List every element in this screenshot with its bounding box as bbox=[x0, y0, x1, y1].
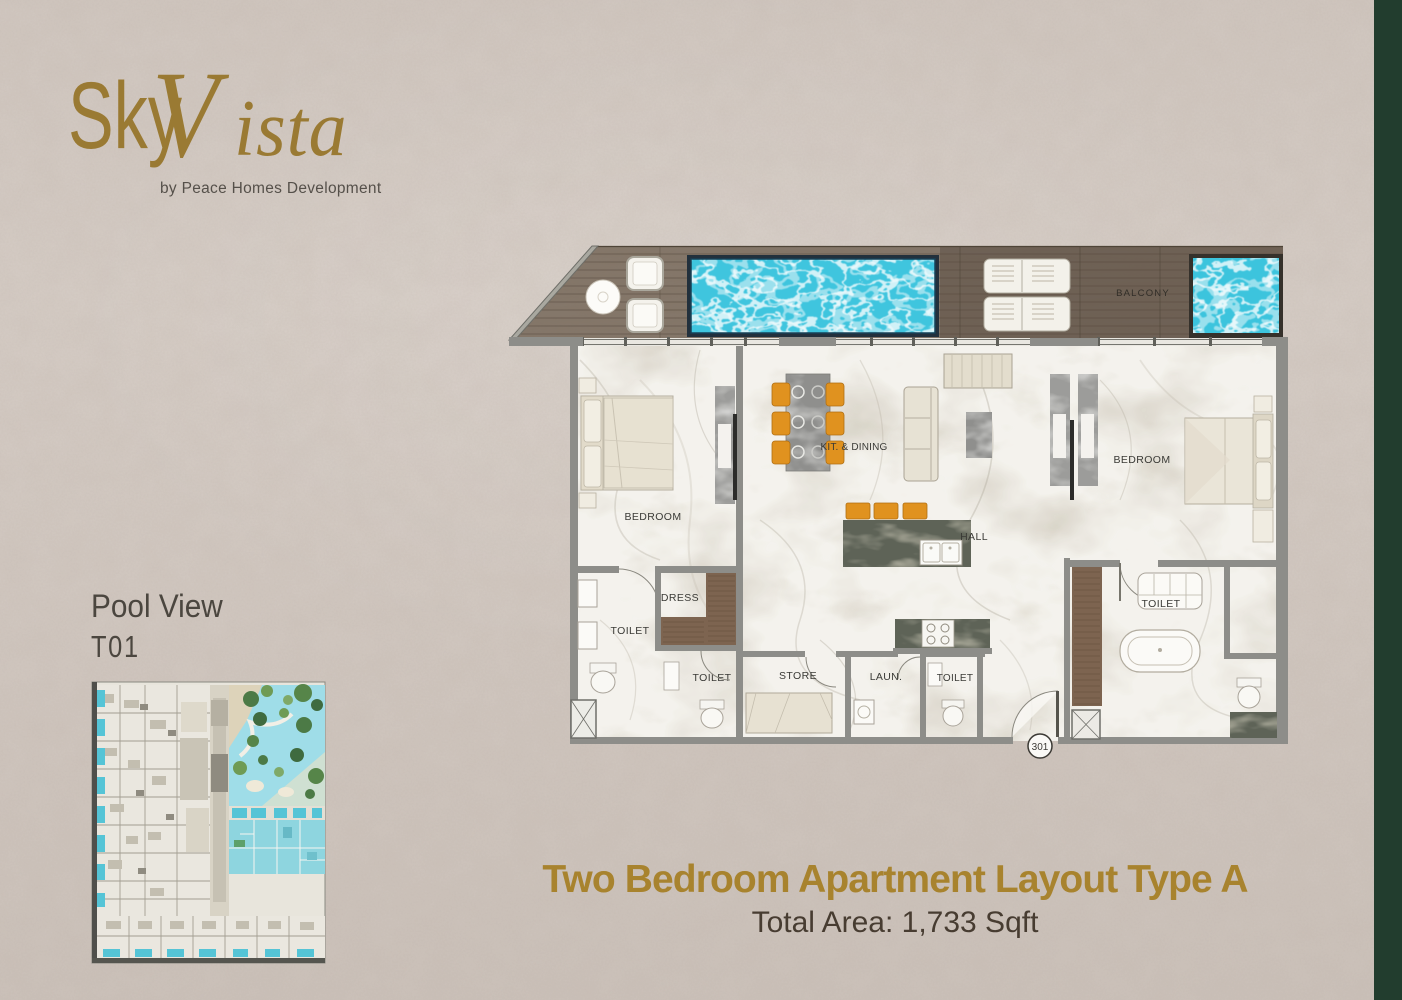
svg-text:BEDROOM: BEDROOM bbox=[624, 511, 681, 523]
svg-text:TOILET: TOILET bbox=[937, 673, 974, 684]
svg-text:BEDROOM: BEDROOM bbox=[1113, 454, 1170, 466]
svg-text:STORE: STORE bbox=[779, 670, 817, 682]
svg-text:BALCONY: BALCONY bbox=[1116, 288, 1170, 299]
svg-text:LAUN.: LAUN. bbox=[870, 671, 902, 683]
svg-text:TOILET: TOILET bbox=[611, 625, 650, 637]
svg-text:301: 301 bbox=[1032, 742, 1049, 753]
svg-text:HALL: HALL bbox=[960, 531, 988, 543]
svg-text:KIT. & DINING: KIT. & DINING bbox=[820, 442, 887, 453]
svg-text:DRESS: DRESS bbox=[661, 592, 699, 604]
svg-text:TOILET: TOILET bbox=[1142, 598, 1181, 610]
